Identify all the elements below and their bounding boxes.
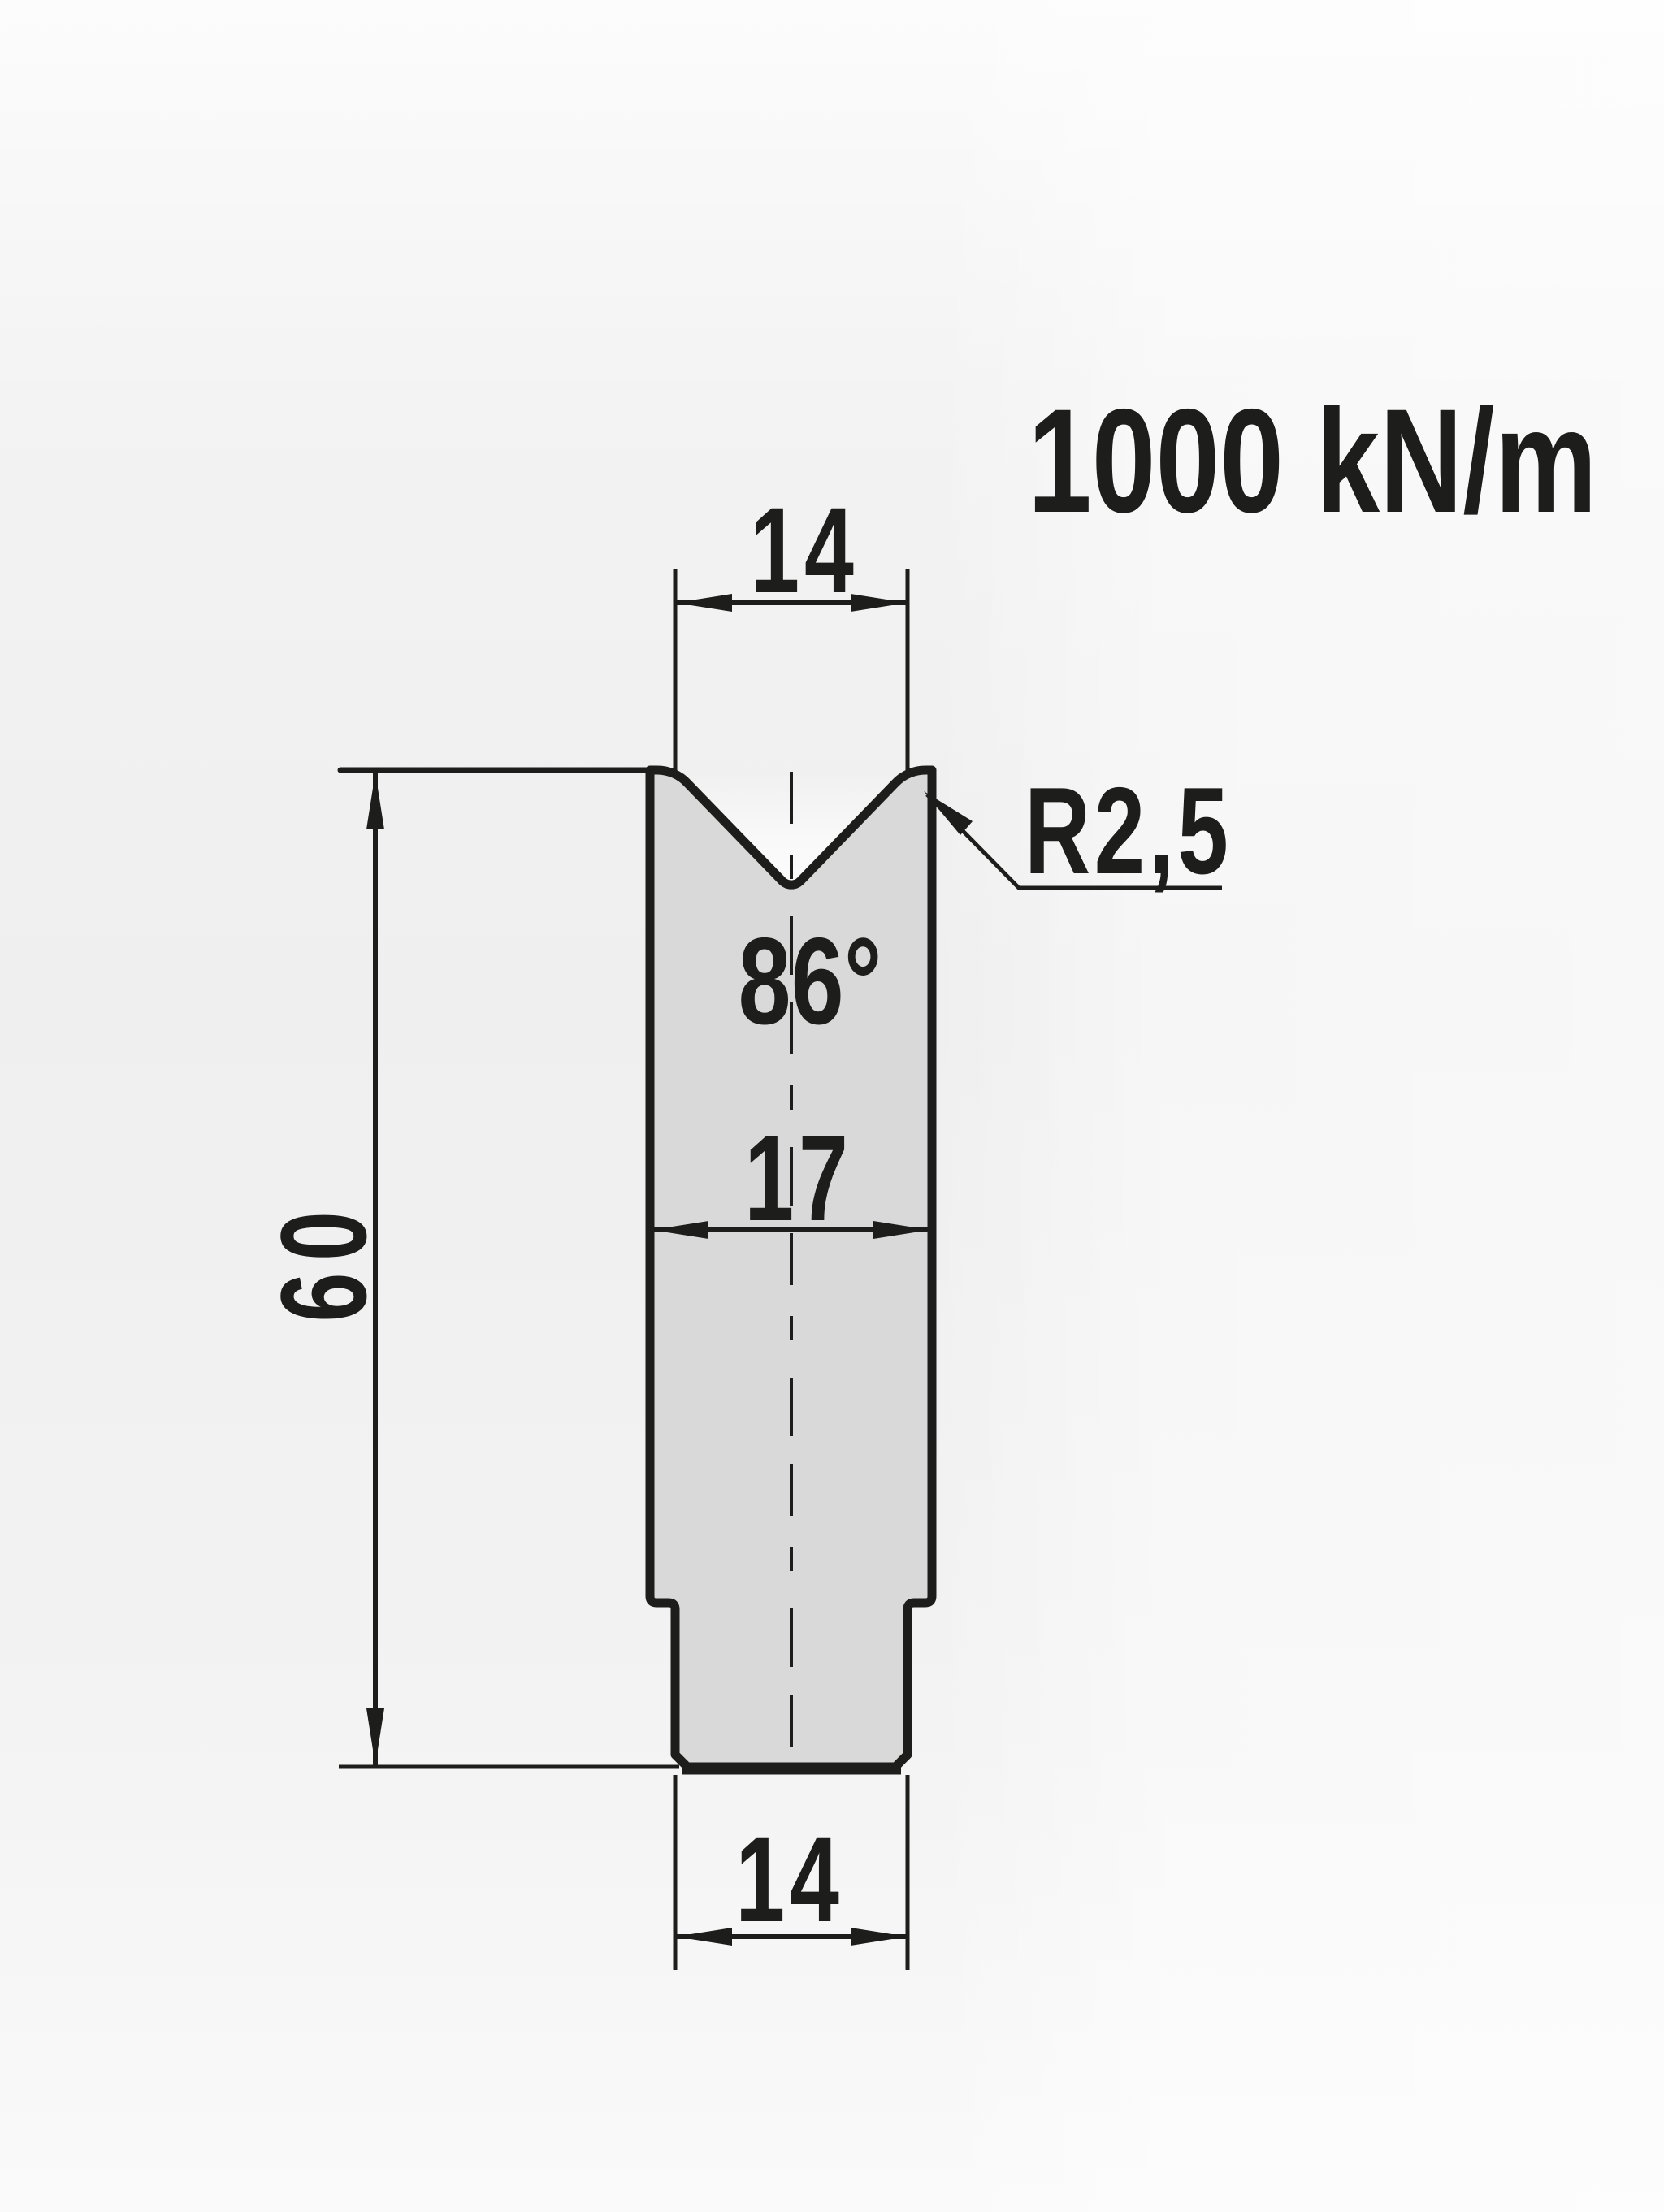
svg-text:R2,5: R2,5 [1025,763,1232,900]
svg-text:1000 kN/m: 1000 kN/m [1028,378,1597,543]
svg-text:17: 17 [744,1110,852,1246]
svg-text:14: 14 [735,1811,843,1947]
svg-text:60: 60 [255,1199,392,1322]
svg-text:86°: 86° [739,911,882,1050]
svg-text:14: 14 [750,482,858,618]
